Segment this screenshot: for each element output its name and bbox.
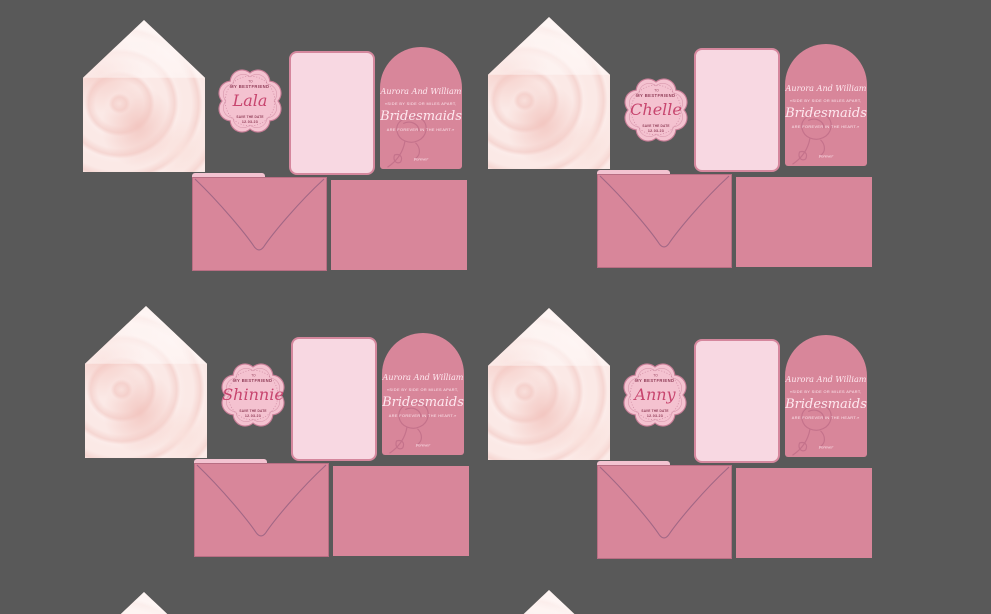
tag-greeting: MY BESTFRIEND (233, 379, 272, 383)
signature-logo: Forever (808, 445, 845, 449)
signature-logo: Forever (405, 443, 442, 447)
invitation-suite: TO MY BESTFRIEND SAVE THE DATE 12.03.23 (83, 592, 468, 614)
bridesmaid-quote-card[interactable]: Aurora And William «SIDE BY SIDE OR MILE… (380, 47, 462, 169)
tag-subline: SAVE THE DATE (641, 410, 668, 412)
tag-bridesmaid-name: Lala (233, 91, 268, 112)
tag-greeting: MY BESTFRIEND (635, 379, 674, 383)
open-envelope-marble-liner[interactable] (488, 17, 610, 169)
blank-note-card[interactable] (291, 337, 377, 461)
tag-to-label: TO (653, 374, 657, 376)
sealed-envelope[interactable] (597, 174, 732, 268)
bridesmaid-quote-card[interactable]: Aurora And William «SIDE BY SIDE OR MILE… (382, 333, 464, 455)
quote-line-1: «SIDE BY SIDE OR MILES APART, (790, 390, 862, 394)
signature-logo: Forever (403, 157, 440, 161)
invitation-suite: TO MY BESTFRIEND Anny SAVE THE DATE 12.0… (488, 308, 873, 559)
tag-bridesmaid-name: Anny (634, 385, 675, 406)
envelope-flap-highlight (83, 592, 205, 614)
envelope-flap-line (195, 464, 328, 556)
tag-greeting: MY BESTFRIEND (636, 94, 675, 98)
bridesmaids-script: Bridesmaids (785, 106, 867, 121)
envelope-flap-highlight (488, 590, 610, 614)
envelope-flap-line (193, 178, 326, 270)
blank-note-card[interactable] (694, 339, 780, 463)
bridesmaids-script: Bridesmaids (380, 109, 462, 124)
tag-bridesmaid-name: Chelle (630, 100, 682, 121)
invitation-suite: TO MY BESTFRIEND Shinnie SAVE THE DATE 1… (85, 306, 470, 557)
design-canvas: TO MY BESTFRIEND Lala SAVE THE DATE 12.0… (0, 0, 991, 614)
plain-back-card[interactable] (736, 177, 872, 267)
quote-line-2: ARE FOREVER IN THE HEART.» (387, 128, 455, 132)
open-envelope-marble-liner[interactable] (488, 308, 610, 460)
couple-names: Aurora And William (383, 374, 464, 384)
plain-back-card[interactable] (333, 466, 469, 556)
tag-subline: SAVE THE DATE (642, 125, 669, 127)
couple-names: Aurora And William (786, 376, 867, 386)
blank-note-card[interactable] (289, 51, 375, 175)
quote-line-1: «SIDE BY SIDE OR MILES APART, (385, 102, 457, 106)
blank-note-card[interactable] (694, 48, 780, 172)
invitation-suite: TO MY BESTFRIEND SAVE THE DATE 12.03.23 (488, 590, 873, 614)
tag-subline: SAVE THE DATE (239, 410, 266, 412)
sealed-envelope[interactable] (194, 463, 329, 557)
couple-names: Aurora And William (786, 85, 867, 95)
bridesmaid-name-tag[interactable]: TO MY BESTFRIEND Chelle SAVE THE DATE 12… (621, 75, 691, 145)
quote-line-1: «SIDE BY SIDE OR MILES APART, (387, 388, 459, 392)
plain-back-card[interactable] (736, 468, 872, 558)
signature-logo: Forever (808, 154, 845, 158)
tag-date: 12.03.23 (245, 414, 261, 416)
bridesmaid-quote-card[interactable]: Aurora And William «SIDE BY SIDE OR MILE… (785, 335, 867, 457)
tag-date: 12.03.23 (242, 120, 258, 122)
couple-names: Aurora And William (381, 88, 462, 98)
quote-line-2: ARE FOREVER IN THE HEART.» (792, 125, 860, 129)
tag-to-label: TO (251, 374, 255, 376)
plain-back-card[interactable] (331, 180, 467, 270)
quote-line-2: ARE FOREVER IN THE HEART.» (792, 416, 860, 420)
quote-line-2: ARE FOREVER IN THE HEART.» (389, 414, 457, 418)
bridesmaid-name-tag[interactable]: TO MY BESTFRIEND Shinnie SAVE THE DATE 1… (218, 360, 288, 430)
bridesmaid-name-tag[interactable]: TO MY BESTFRIEND Anny SAVE THE DATE 12.0… (620, 360, 690, 430)
invitation-suite: TO MY BESTFRIEND Lala SAVE THE DATE 12.0… (83, 20, 468, 271)
bridesmaid-name-tag[interactable]: TO MY BESTFRIEND Lala SAVE THE DATE 12.0… (215, 66, 285, 136)
open-envelope-marble-liner[interactable] (85, 306, 207, 458)
envelope-flap-line (598, 175, 731, 267)
bridesmaids-script: Bridesmaids (382, 395, 464, 410)
envelope-flap-line (598, 466, 731, 558)
tag-bridesmaid-name: Shinnie (222, 385, 284, 406)
tag-date: 12.03.23 (647, 414, 663, 416)
open-envelope-marble-liner[interactable] (488, 590, 610, 614)
tag-to-label: TO (248, 80, 252, 82)
open-envelope-marble-liner[interactable] (83, 20, 205, 172)
bridesmaids-script: Bridesmaids (785, 397, 867, 412)
quote-line-1: «SIDE BY SIDE OR MILES APART, (790, 99, 862, 103)
invitation-suite: TO MY BESTFRIEND Chelle SAVE THE DATE 12… (488, 17, 873, 268)
tag-date: 12.03.23 (648, 129, 664, 131)
sealed-envelope[interactable] (597, 465, 732, 559)
sealed-envelope[interactable] (192, 177, 327, 271)
tag-subline: SAVE THE DATE (236, 116, 263, 118)
tag-to-label: TO (654, 89, 658, 91)
open-envelope-marble-liner[interactable] (83, 592, 205, 614)
tag-greeting: MY BESTFRIEND (230, 85, 269, 89)
bridesmaid-quote-card[interactable]: Aurora And William «SIDE BY SIDE OR MILE… (785, 44, 867, 166)
